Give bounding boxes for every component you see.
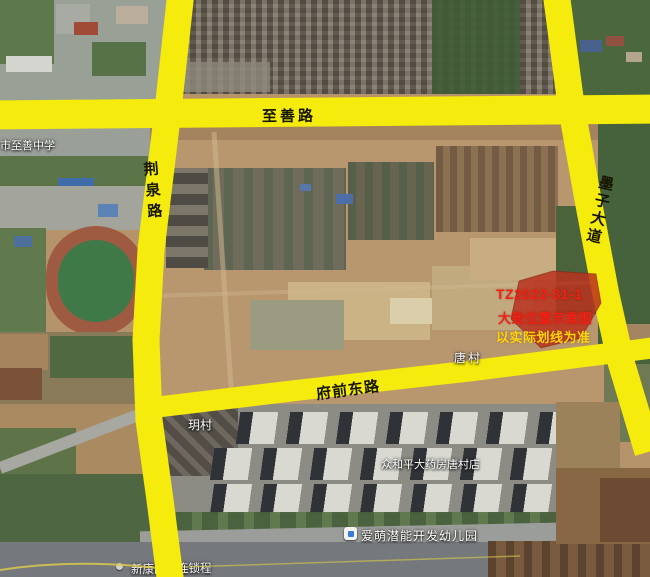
poi-yue-village: 玥村 (188, 416, 212, 433)
parcel-note-2: 以实际划线为准 (496, 327, 591, 346)
parcel-id: TZ2022-31-1 (496, 286, 582, 302)
satellite-map[interactable]: 新康医 连锁程 至善路 荆泉路 墨子大道 府前东路 TZ2022-31-1 大致… (0, 0, 650, 577)
poi-school: 市至善中学 (0, 137, 55, 153)
poi-kindergarten: 爱萌潜能开发幼儿园 (361, 527, 478, 544)
parcel-note-1: 大致位置示意图 (498, 308, 593, 327)
kindergarten-icon (344, 527, 357, 540)
poi-tang-village: 唐村 (454, 349, 482, 366)
poi-pharmacy: 众和平大药房唐村店 (381, 456, 480, 472)
